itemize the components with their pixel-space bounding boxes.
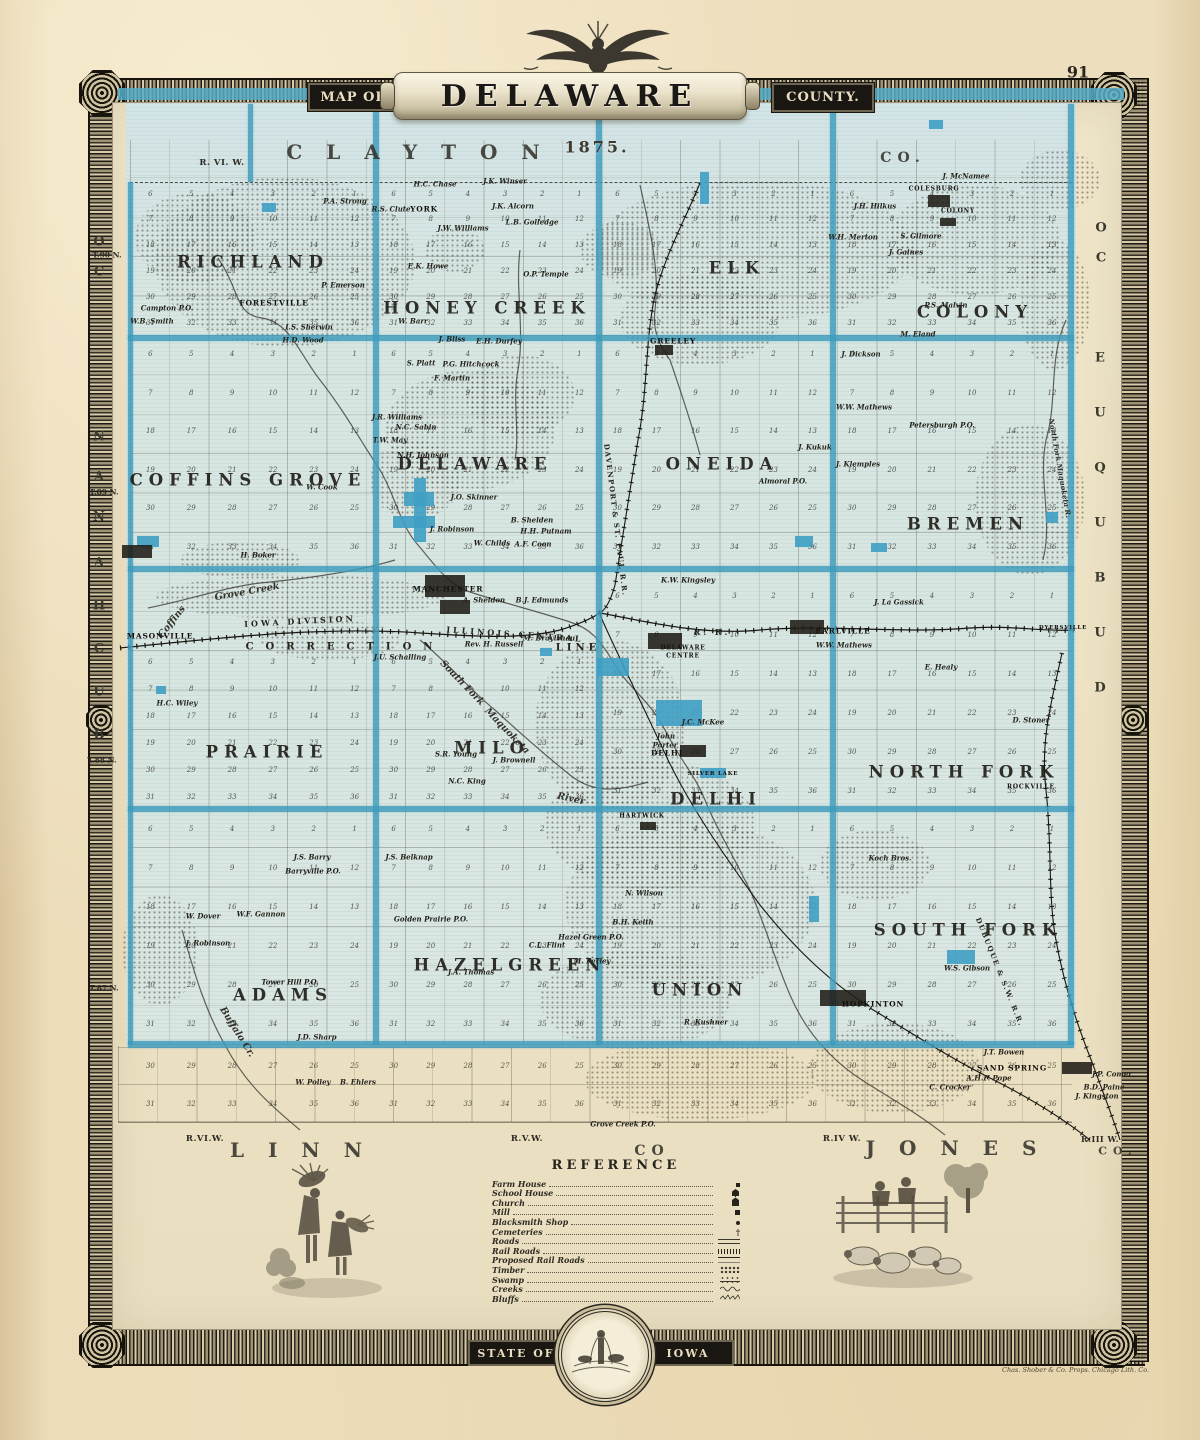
map-label: J.C. McKee <box>682 718 724 727</box>
reference-item: Blacksmith Shop <box>492 1217 740 1227</box>
state-banner-right-text: IOWA <box>667 1347 710 1360</box>
map-label: J.H. Hilkus <box>854 202 897 211</box>
map-label: H <box>93 599 105 614</box>
map-label: ELK <box>709 259 766 278</box>
map-label: J. Kingston <box>1075 1092 1118 1101</box>
title-scroll: DELAWARE <box>393 72 747 120</box>
reference-title: REFERENCE <box>492 1158 740 1173</box>
map-label: C <box>1096 251 1106 266</box>
map-label: J. Robinson <box>186 939 230 948</box>
map-label: R. VI. W. <box>199 158 244 168</box>
creek-symbol-icon <box>716 1284 740 1294</box>
map-label: W. Dover <box>186 912 221 921</box>
map-label: HONEY CREEK <box>383 299 590 318</box>
reference-leader <box>549 1186 713 1187</box>
reference-leader <box>526 1291 713 1292</box>
map-label: CO. <box>880 150 925 166</box>
church-symbol-icon <box>716 1194 740 1208</box>
map-label: J. Dickson <box>841 350 880 359</box>
map-label: C <box>94 265 104 280</box>
reference-item: Farm House <box>492 1179 740 1189</box>
page-number: 91 <box>1067 63 1089 82</box>
map-label: J. Brownell <box>493 756 536 765</box>
map-label: John <box>657 732 675 741</box>
map-label: U <box>93 685 104 700</box>
reference-leader <box>588 1262 713 1263</box>
map-label: Hazel Green P.O. <box>558 933 623 942</box>
reference-item: Cemeteries† <box>492 1227 740 1237</box>
map-label: A. Sheldon <box>463 596 505 605</box>
map-label: J. Bliss <box>439 335 466 344</box>
map-label: Buffalo Cr. <box>217 1005 257 1059</box>
reference-leader <box>522 1243 713 1244</box>
map-label: A.H.F. Pope <box>966 1074 1011 1083</box>
map-label: HARTWICK <box>619 813 665 820</box>
map-label: N.C. Sabin <box>396 423 437 432</box>
reference-item: Proposed Rail Roads <box>492 1256 740 1266</box>
map-label: W.W. Mathews <box>816 641 872 650</box>
reference-leader <box>522 1301 713 1302</box>
reference-item-label: Cemeteries <box>492 1227 543 1237</box>
bluff-symbol-icon <box>716 1294 740 1304</box>
reference-item-label: Roads <box>492 1236 519 1246</box>
map-label: SILVER LAKE <box>688 771 739 777</box>
map-label: H.H. Putnam <box>520 527 571 536</box>
map-label: H.C. Chase <box>414 180 457 189</box>
map-label: Porter <box>653 741 678 750</box>
map-label: K.W. Kingsley <box>661 576 715 585</box>
reference-leader <box>556 1195 713 1196</box>
blacksmith-symbol-icon <box>716 1217 740 1227</box>
medallion-engraving-icon <box>562 1312 640 1390</box>
reference-leader <box>527 1282 713 1283</box>
title-year: 1875. <box>564 138 629 157</box>
map-label: N. Wilson <box>625 889 663 898</box>
map-label: W. Barr <box>398 317 427 326</box>
map-label: M. Eland <box>900 330 935 339</box>
map-label: North Fork Maquoketa R. <box>1047 418 1073 518</box>
railroad-symbol-icon <box>716 1246 740 1256</box>
map-label: N <box>93 430 105 445</box>
map-label: F. Martin <box>434 374 470 383</box>
map-label: N.C. King <box>448 777 485 786</box>
map-label: E. Healy <box>925 663 958 672</box>
map-label: A.F. Coon <box>514 540 551 549</box>
map-label: HOPKINTON <box>842 1000 904 1009</box>
map-label: O <box>1095 221 1106 236</box>
reference-item-label: Bluffs <box>492 1294 519 1304</box>
map-label: COLONY <box>941 208 975 215</box>
map-label: C.L. Flint <box>529 941 565 950</box>
map-label: W.H. Merton <box>828 233 878 242</box>
map-label: S.R. Young <box>435 750 477 759</box>
reference-item: Mill <box>492 1208 740 1218</box>
reference-item: Rail Roads <box>492 1246 740 1256</box>
reference-item: Roads <box>492 1237 740 1247</box>
map-label: B <box>1095 571 1106 586</box>
map-label: FORESTVILLE <box>239 299 308 308</box>
map-label: J.A. Thomas <box>448 968 494 977</box>
map-label: B. Shelden <box>511 516 554 525</box>
map-label: L.B. Golledge <box>506 218 559 227</box>
map-label: T.89 N. <box>89 488 118 497</box>
map-label: W. Polley <box>295 1078 330 1087</box>
map-label: A <box>94 470 104 485</box>
map-label: P. Emerson <box>321 281 365 290</box>
map-label: C. Crocker <box>929 1083 971 1092</box>
map-label: EARLVILLE <box>816 627 871 636</box>
map-label: YORK <box>410 205 438 214</box>
map-label: W. Childs <box>474 539 510 548</box>
map-label: T.88 N. <box>87 756 116 765</box>
map-label: DYERSVILLE <box>1039 625 1087 631</box>
map-label: Barryville P.O. <box>285 867 341 876</box>
map-label: ROCKVILLE <box>1007 784 1055 791</box>
map-label: W.B. Smith <box>130 317 173 326</box>
reference-item: Timber <box>492 1265 740 1275</box>
reference-item-label: Farm House <box>492 1179 546 1189</box>
reference-leader <box>513 1214 713 1215</box>
reference-item-label: School House <box>492 1188 553 1198</box>
map-label: PRAIRIE <box>206 743 329 762</box>
map-label: U <box>1094 516 1105 531</box>
map-label: ONEIDA <box>666 455 779 474</box>
map-label: LINE <box>556 643 600 654</box>
map-label: B.J. Edmunds <box>516 596 569 605</box>
map-label: T.90 N. <box>92 251 121 260</box>
map-label: LINN <box>230 1138 386 1162</box>
map-label: DELHI <box>670 790 762 809</box>
map-label: J.T. Bowen <box>984 1048 1025 1057</box>
reference-item-label: Timber <box>492 1265 524 1275</box>
map-label: R. R. <box>694 627 731 637</box>
map-label: B.H. Keith <box>612 918 653 927</box>
reference-leader <box>571 1224 713 1225</box>
map-label: Q <box>1094 461 1105 476</box>
map-label: ADAMS <box>233 986 333 1005</box>
map-label: Grove Creek <box>214 581 280 603</box>
map-label: C <box>94 642 104 657</box>
map-label: J.S. Barry <box>294 853 331 862</box>
map-label: COLESBURG <box>909 186 960 193</box>
reference-legend: REFERENCE Farm HouseSchool HouseChurchMi… <box>492 1158 740 1304</box>
map-label: D <box>1094 681 1105 696</box>
state-banner-left-text: STATE OF <box>477 1347 554 1360</box>
map-label: W.F. Gannon <box>237 910 286 919</box>
map-label: T.87 N. <box>89 984 118 993</box>
reference-leader <box>543 1253 713 1254</box>
reference-item: Church <box>492 1198 740 1208</box>
map-label: M. Braylshau <box>523 634 575 643</box>
swamp-symbol-icon <box>716 1275 740 1285</box>
reference-list: Farm HouseSchool HouseChurchMillBlacksmi… <box>492 1179 740 1304</box>
reference-item-label: Blacksmith Shop <box>492 1217 568 1227</box>
map-label: E.K. Howe <box>408 262 449 271</box>
title-map-of-text: MAP OF <box>320 90 385 105</box>
map-label: H.D. Wood <box>282 336 323 345</box>
map-label: SAND SPRING <box>977 1064 1047 1073</box>
map-label: J. Klemples <box>836 460 880 469</box>
reference-item-label: Creeks <box>492 1284 523 1294</box>
map-label: J.K. Winser <box>483 177 527 186</box>
map-label: River <box>556 791 586 808</box>
reference-item-label: Church <box>492 1198 525 1208</box>
harvest-vignette <box>262 1163 392 1303</box>
map-label: S. Platt <box>407 359 436 368</box>
map-label: A <box>94 556 104 571</box>
map-label: GREELEY <box>650 337 696 346</box>
map-label: NORTH FORK <box>869 763 1060 782</box>
map-label: H.C. Wiley <box>157 699 198 708</box>
map-label: Almoral P.O. <box>759 477 807 486</box>
map-label: S. Gilmore <box>900 232 941 241</box>
map-label: J.D. Sharp <box>297 1033 336 1042</box>
map-label: P.A. Strong <box>323 197 366 206</box>
timber-symbol-icon <box>716 1265 740 1275</box>
map-label: P.G. Hitchcock <box>442 360 499 369</box>
map-label: H. Boker <box>240 551 275 560</box>
map-label: J.U. Schalling <box>374 653 426 662</box>
map-label: Koch Bros. <box>868 854 911 863</box>
map-label: P.S. Malvin <box>925 301 968 310</box>
map-label: B.D. Paine <box>1084 1083 1125 1092</box>
reference-item-label: Swamp <box>492 1275 524 1285</box>
map-label: J. Gaines <box>889 248 923 257</box>
map-label: I.S. Sherwin <box>285 323 332 332</box>
title-county-word: COUNTY. <box>772 83 874 112</box>
map-label: R.V.W. <box>511 1134 543 1144</box>
map-label: M. Perley <box>573 957 610 966</box>
map-label: Rev. H. Russell <box>465 640 524 649</box>
map-label: J.K. Alcorn <box>492 202 534 211</box>
map-label: R. Kushner <box>684 1018 728 1027</box>
map-label: W.W. Mathews <box>836 403 892 412</box>
reference-leader <box>528 1205 713 1206</box>
reference-item: Swamp <box>492 1275 740 1285</box>
map-label: O <box>93 235 104 250</box>
map-label: J. Robinson <box>430 525 474 534</box>
map-label: B <box>94 728 105 743</box>
proposed-symbol-icon <box>716 1255 740 1265</box>
map-label: Grove Creek P.O. <box>590 1120 655 1129</box>
map-label: Golden Prairie P.O. <box>394 915 468 924</box>
map-label: J. McNamee <box>943 172 990 181</box>
state-medallion <box>558 1308 652 1402</box>
map-label: RICHLAND <box>177 253 329 272</box>
map-label: R.III W. <box>1081 1134 1119 1144</box>
map-label: J. Kukuk <box>798 443 831 452</box>
map-label: CENTRE <box>666 653 700 660</box>
map-label: DELHI <box>651 749 683 758</box>
reference-item: Creeks <box>492 1285 740 1295</box>
publisher-credit: Chas. Shober & Co. Props. Chicago Lith. … <box>1002 1366 1149 1374</box>
map-label: D. Stoner <box>1013 716 1050 725</box>
reference-item: Bluffs <box>492 1294 740 1304</box>
map-label: JONES <box>866 1136 1061 1160</box>
reference-leader <box>546 1234 713 1235</box>
map-label: N <box>93 510 105 525</box>
map-label: BREMEN <box>907 515 1029 534</box>
map-label: Campton P.O. <box>141 304 194 313</box>
map-label: DAVENPORT & ST. PAUL R.R. <box>602 443 630 596</box>
map-label: R.IV W. <box>823 1134 861 1144</box>
map-label: R.VI.W. <box>186 1134 224 1144</box>
farmstead-vignette <box>818 1158 993 1293</box>
map-label: B. Ehlers <box>340 1078 376 1087</box>
map-label: MANCHESTER <box>413 585 484 594</box>
map-label: SOUTH FORK <box>874 921 1062 940</box>
map-label: E <box>1095 351 1105 366</box>
map-label: UNION <box>652 981 749 1000</box>
map-label: J.S. Belknap <box>385 853 432 862</box>
map-label: IOWA DIVISION <box>244 613 356 629</box>
map-label: N.H. Johnson <box>397 451 449 460</box>
cemetery-symbol-icon: † <box>716 1227 740 1237</box>
map-label: J.O. Skinner <box>451 493 498 502</box>
map-label: MASONVILLE <box>127 632 194 641</box>
reference-item: School House <box>492 1189 740 1199</box>
map-label: CORRECTION <box>246 642 445 653</box>
mill-symbol-icon <box>716 1207 740 1217</box>
map-label: J.W. Williams <box>437 224 488 233</box>
reference-item-label: Rail Roads <box>492 1246 540 1256</box>
map-label: J. La Gassick <box>874 598 924 607</box>
reference-item-label: Proposed Rail Roads <box>492 1255 585 1265</box>
road-symbol-icon <box>716 1236 740 1246</box>
map-label: O.P. Temple <box>523 270 568 279</box>
map-label: T.W. May <box>373 436 408 445</box>
reference-item-label: Mill <box>492 1207 510 1217</box>
map-label: CO. <box>1098 1145 1138 1158</box>
map-label: CLAYTON <box>286 140 563 164</box>
map-label: U <box>1094 406 1105 421</box>
map-label: J.P. Comer <box>1092 1070 1132 1079</box>
state-banner-left: STATE OF <box>468 1340 564 1366</box>
map-label: E.H. Durfey <box>476 337 522 346</box>
map-label: Tower Hill P.O. <box>261 978 318 987</box>
title-county-word-text: COUNTY. <box>786 90 860 105</box>
map-label: J.R. Williams <box>372 413 422 422</box>
map-label: South Fork <box>438 658 487 708</box>
map-label: CO <box>634 1143 669 1159</box>
map-label: DELAWARE <box>660 645 705 652</box>
map-label: W. Cook <box>306 483 337 492</box>
title-county-name: DELAWARE <box>441 79 700 114</box>
map-label: W.S. Gibson <box>944 964 990 973</box>
map-label: U <box>1094 626 1105 641</box>
map-label: R.S. Clute <box>372 205 411 214</box>
map-label: Petersburgh P.O. <box>909 421 975 430</box>
atlas-page: 6543217891011121817161514131920212223243… <box>0 0 1200 1440</box>
farmhouse-symbol-icon <box>716 1179 740 1189</box>
state-banner-right: IOWA <box>642 1340 734 1366</box>
reference-leader <box>527 1272 713 1273</box>
